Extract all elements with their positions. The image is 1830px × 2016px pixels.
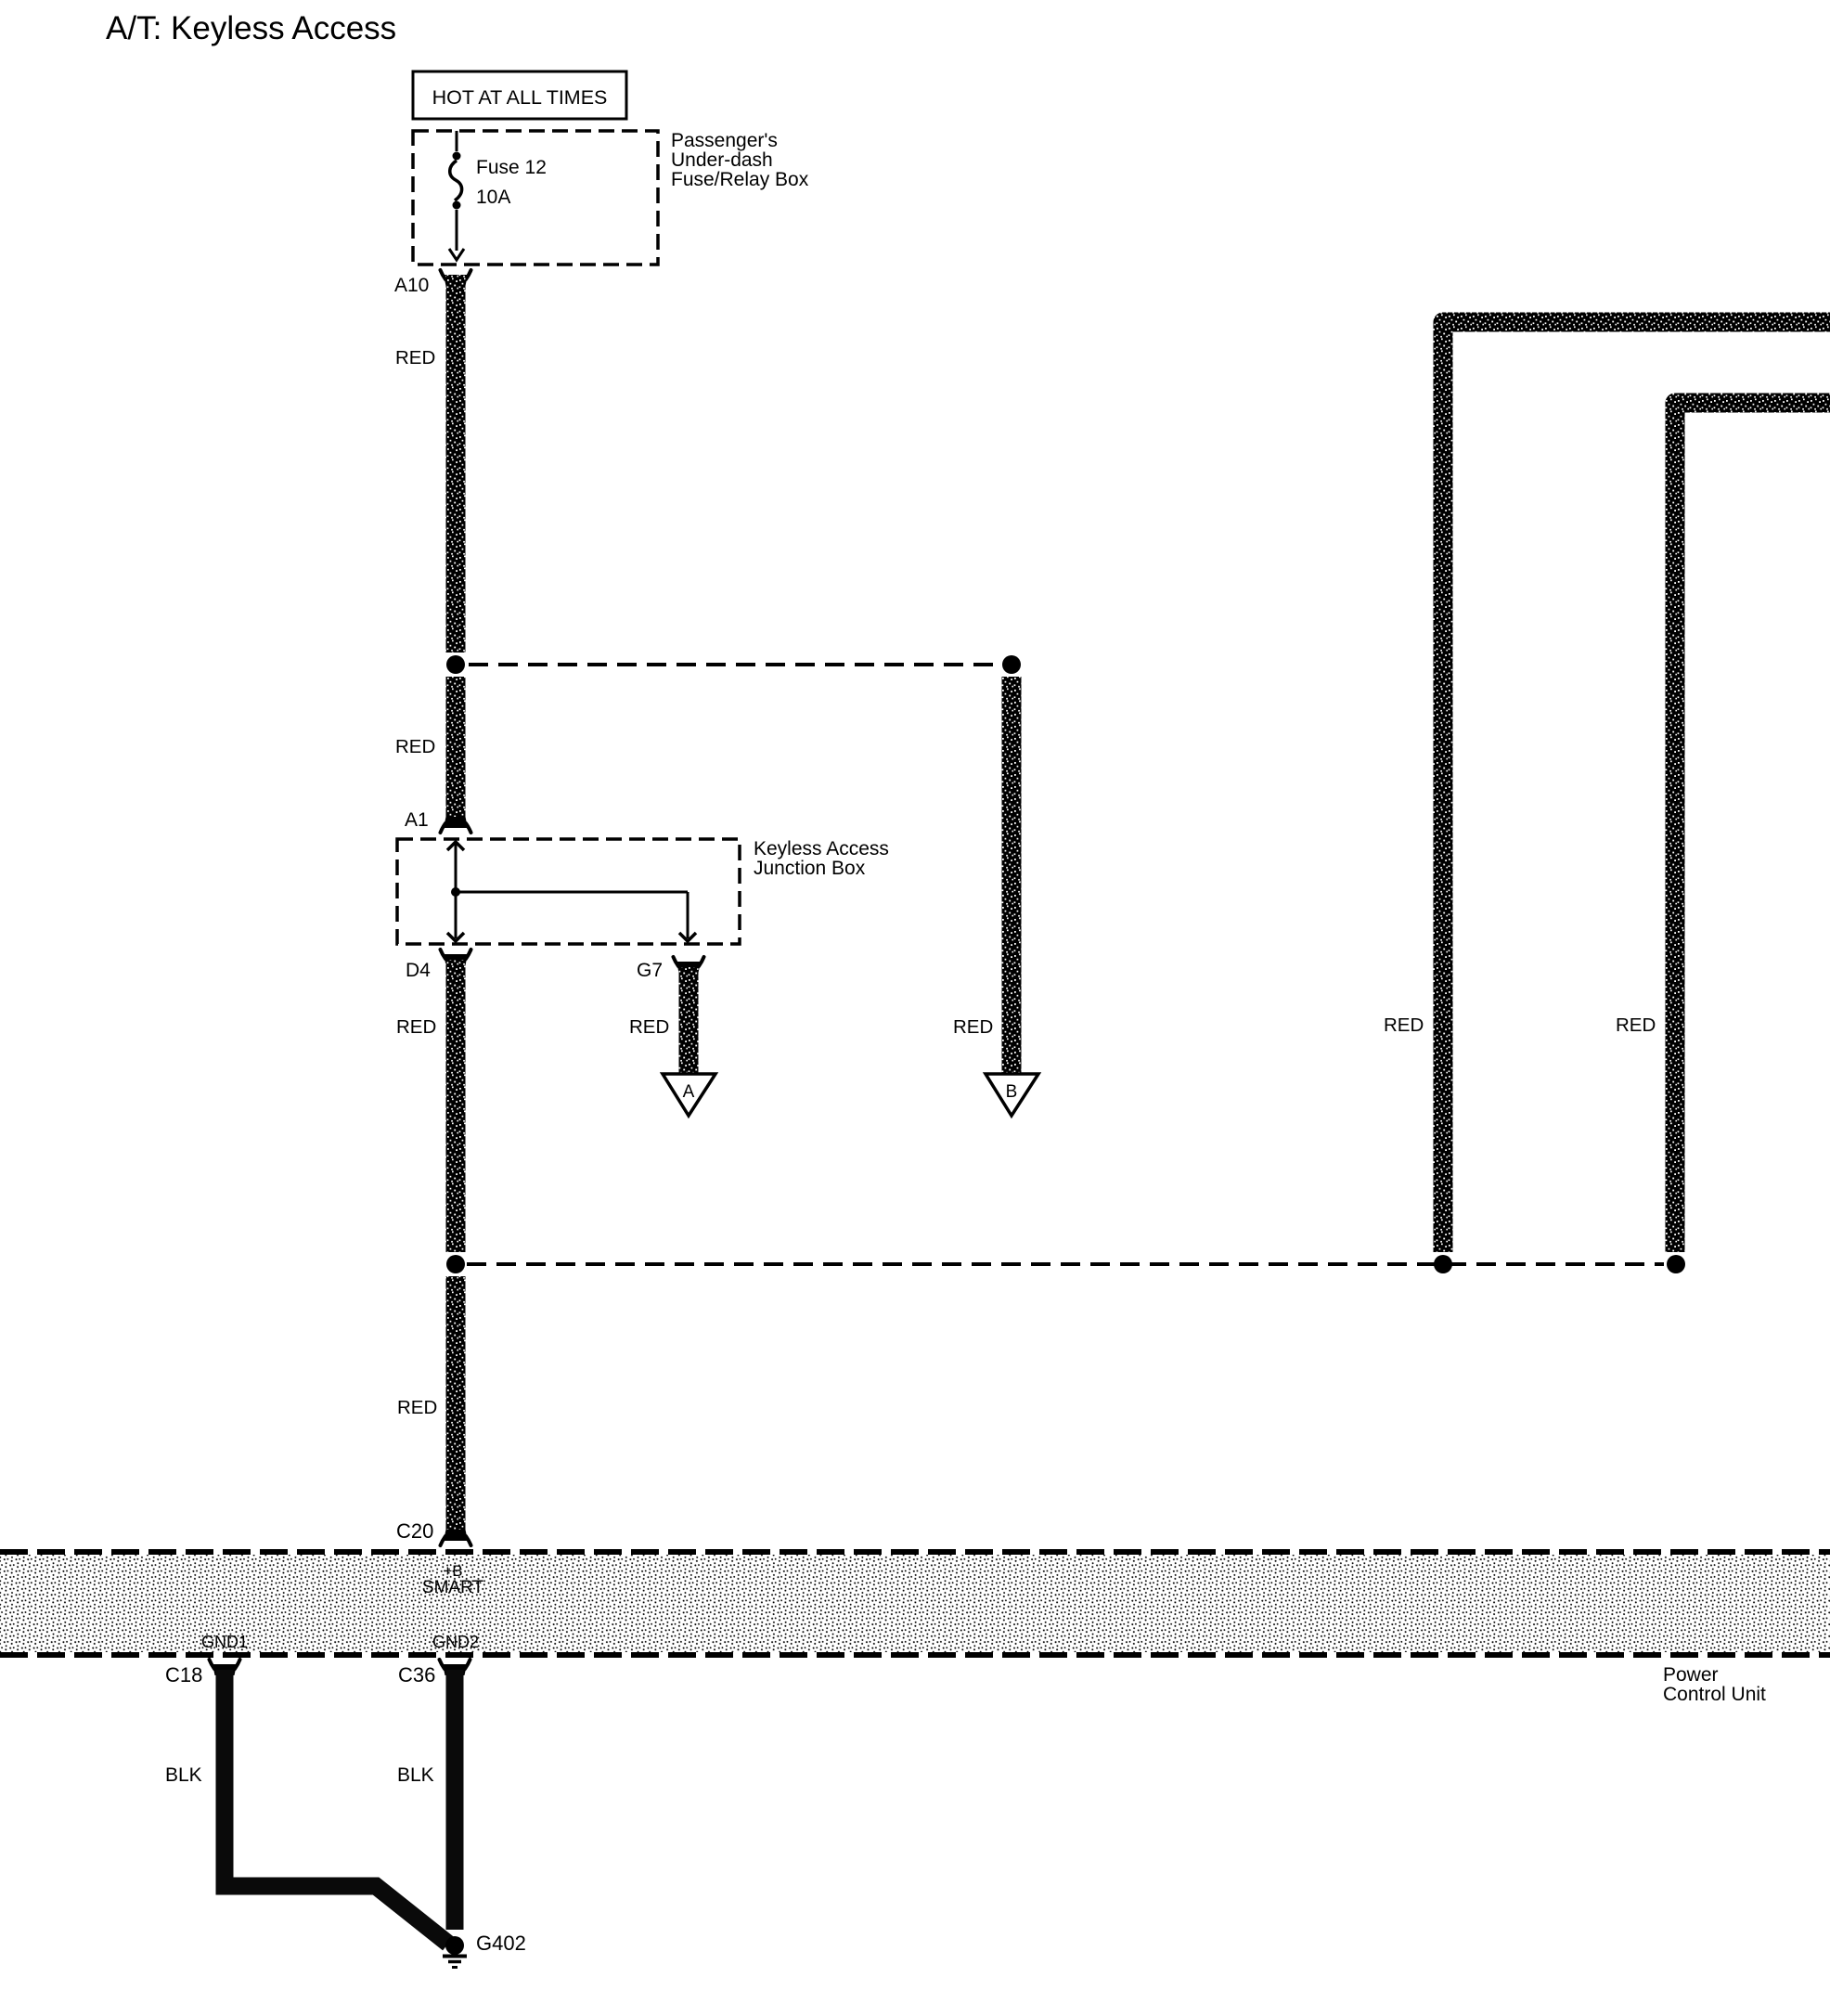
svg-text:A10: A10 (394, 275, 429, 296)
svg-text:C20: C20 (396, 1519, 433, 1543)
svg-text:G402: G402 (476, 1932, 526, 1955)
svg-text:RED: RED (396, 1016, 436, 1038)
svg-text:RED: RED (395, 347, 435, 368)
svg-text:RED: RED (397, 1397, 437, 1418)
svg-text:GND1: GND1 (201, 1633, 248, 1651)
svg-text:A/T: Keyless Access: A/T: Keyless Access (106, 10, 396, 46)
svg-text:GND2: GND2 (432, 1633, 479, 1651)
svg-text:A: A (683, 1082, 695, 1102)
svg-text:RED: RED (1384, 1014, 1424, 1036)
svg-text:D4: D4 (406, 960, 431, 981)
svg-text:Fuse 12: Fuse 12 (476, 157, 547, 178)
svg-text:RED: RED (629, 1016, 669, 1038)
svg-text:Under-dash: Under-dash (671, 149, 773, 171)
svg-text:C36: C36 (398, 1663, 435, 1686)
svg-text:Keyless Access: Keyless Access (754, 838, 889, 859)
svg-text:RED: RED (1616, 1014, 1656, 1036)
svg-text:Passenger's: Passenger's (671, 130, 778, 151)
svg-text:Control Unit: Control Unit (1663, 1684, 1766, 1705)
svg-text:C18: C18 (165, 1663, 202, 1686)
svg-text:Fuse/Relay Box: Fuse/Relay Box (671, 169, 809, 190)
svg-text:SMART: SMART (422, 1578, 484, 1597)
svg-text:B: B (1006, 1082, 1018, 1102)
svg-text:A1: A1 (405, 809, 429, 831)
svg-text:RED: RED (395, 736, 435, 757)
svg-text:Power: Power (1663, 1664, 1719, 1686)
svg-text:HOT AT ALL TIMES: HOT AT ALL TIMES (432, 86, 608, 109)
svg-text:BLK: BLK (397, 1764, 434, 1786)
svg-text:Junction Box: Junction Box (754, 858, 866, 879)
svg-text:10A: 10A (476, 187, 510, 208)
svg-text:RED: RED (953, 1016, 993, 1038)
svg-text:BLK: BLK (165, 1764, 202, 1786)
svg-text:G7: G7 (637, 960, 663, 981)
